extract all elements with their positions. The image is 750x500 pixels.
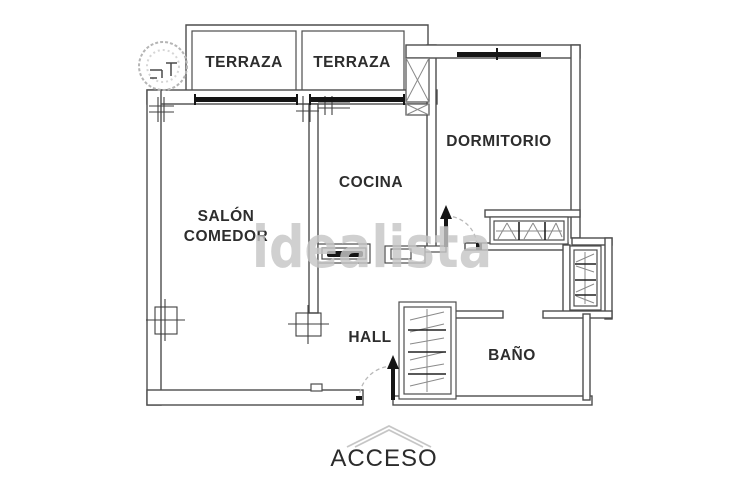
floorplan: TERRAZA TERRAZA DORMITORIO COCINA SALÓN … — [0, 0, 750, 500]
window-tick — [309, 94, 311, 105]
room-label-hall: HALL — [348, 329, 391, 346]
tree-canopy-inner — [147, 50, 179, 82]
window-terraza-2 — [311, 97, 403, 102]
entry-door-jamb — [356, 396, 362, 400]
room-label-cocina: COCINA — [339, 174, 403, 191]
window-tick — [496, 48, 498, 60]
wall-left — [147, 90, 161, 405]
wall-dormitorio-right — [571, 45, 580, 238]
room-label-terraza-2: TERRAZA — [313, 54, 391, 71]
room-label-dormitorio: DORMITORIO — [446, 133, 551, 150]
room-label-salon-line1: SALÓN — [198, 207, 255, 225]
wardrobe-corridor — [570, 246, 601, 310]
acceso-label: ACCESO — [330, 445, 437, 472]
wall-bano-top-right — [543, 311, 612, 318]
room-label-terraza-1: TERRAZA — [205, 54, 283, 71]
watermark: idealista — [252, 213, 492, 281]
wall-bottom-left — [147, 390, 363, 405]
tree-marks — [150, 63, 177, 78]
window-tick — [403, 94, 405, 105]
wall-salon-cocina — [309, 104, 318, 313]
window-terraza-1 — [196, 97, 296, 102]
room-label-bano: BAÑO — [488, 346, 536, 364]
wall-notch — [311, 384, 322, 391]
column-bottom-mid — [288, 305, 329, 344]
wall-dormitorio-bottom — [485, 210, 580, 217]
wall-bump-right — [605, 238, 612, 319]
entry-door-leaf — [391, 366, 395, 400]
wall-corridor-right — [563, 245, 570, 317]
elevator-shaft — [406, 58, 429, 115]
window-dormitorio — [457, 52, 541, 57]
wardrobe-hall — [399, 302, 456, 399]
tree-canopy — [139, 42, 187, 90]
wall-bano-right — [583, 314, 590, 400]
entry-door-arc — [359, 366, 393, 400]
acceso-marker: ACCESO — [330, 426, 437, 472]
wardrobe-dormitorio — [490, 217, 568, 244]
tree-icon — [139, 42, 187, 90]
window-tick — [194, 94, 196, 105]
wall-bano-top-left — [451, 311, 503, 318]
entry-door-arrow-icon — [387, 355, 399, 369]
window-tick — [296, 94, 298, 105]
